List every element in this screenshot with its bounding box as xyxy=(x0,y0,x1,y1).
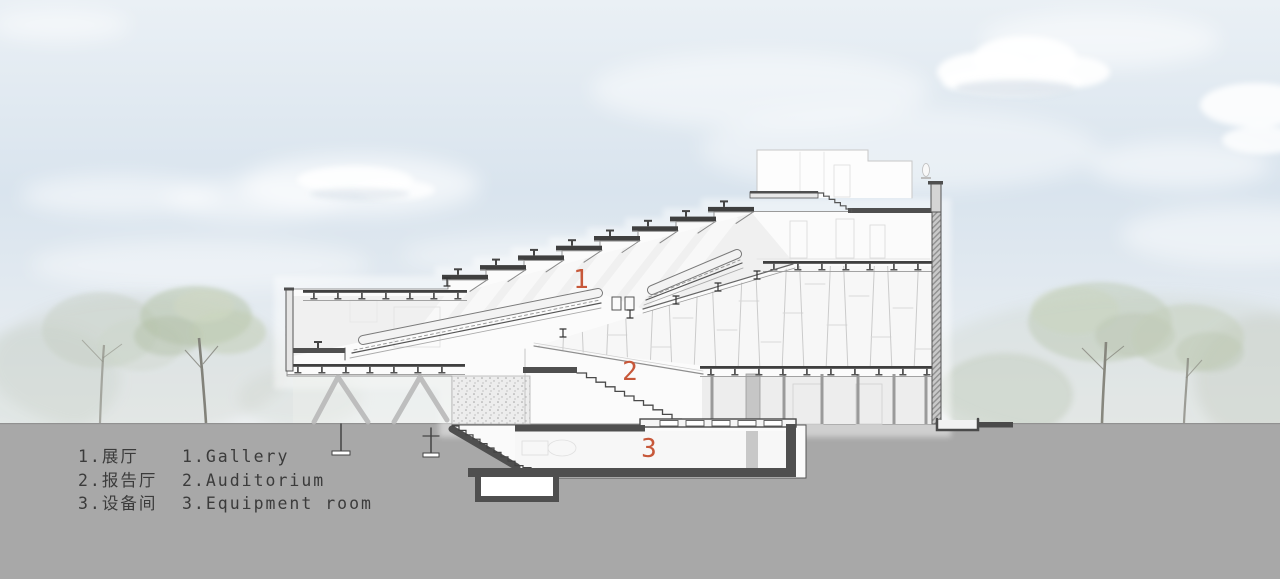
legend-auditorium-en: 2.Auditorium xyxy=(182,469,325,493)
legend-row-equipment: 3.设备间 3.Equipment room xyxy=(78,492,373,516)
legend-auditorium-zh: 2.报告厅 xyxy=(78,469,182,493)
site-edge-bar xyxy=(977,422,1013,428)
legend-row-gallery: 1.展厅 1.Gallery xyxy=(78,445,373,469)
marker-gallery: 1 xyxy=(573,265,589,295)
marker-equipment: 3 xyxy=(641,434,657,464)
legend: 1.展厅 1.Gallery 2.报告厅 2.Auditorium 3.设备间 … xyxy=(78,445,373,516)
legend-equipment-en: 3.Equipment room xyxy=(182,492,373,516)
legend-gallery-en: 1.Gallery xyxy=(182,445,289,469)
auditorium-landing-slab xyxy=(523,367,577,373)
legend-row-auditorium: 2.报告厅 2.Auditorium xyxy=(78,469,373,493)
stone-core xyxy=(452,376,530,424)
basement-right-wall xyxy=(786,424,796,470)
basement-top-slab xyxy=(515,425,645,432)
roof-ornament xyxy=(923,164,930,177)
basement-floor-slab xyxy=(468,468,796,477)
stage-floor-beam xyxy=(640,419,796,427)
marker-auditorium: 2 xyxy=(622,357,638,387)
legend-gallery-zh: 1.展厅 xyxy=(78,445,182,469)
legend-equipment-zh: 3.设备间 xyxy=(78,492,182,516)
left-wall xyxy=(286,289,293,371)
architectural-section-scene: 1 2 3 1.展厅 1.Gallery 2.报告厅 2.Auditorium … xyxy=(0,0,1280,579)
sump-pit xyxy=(478,477,556,499)
core-column xyxy=(746,374,760,424)
right-wall xyxy=(932,212,941,424)
ground-floor-colonnade xyxy=(702,374,936,424)
right-parapet xyxy=(931,183,941,212)
basement-column xyxy=(746,431,758,468)
